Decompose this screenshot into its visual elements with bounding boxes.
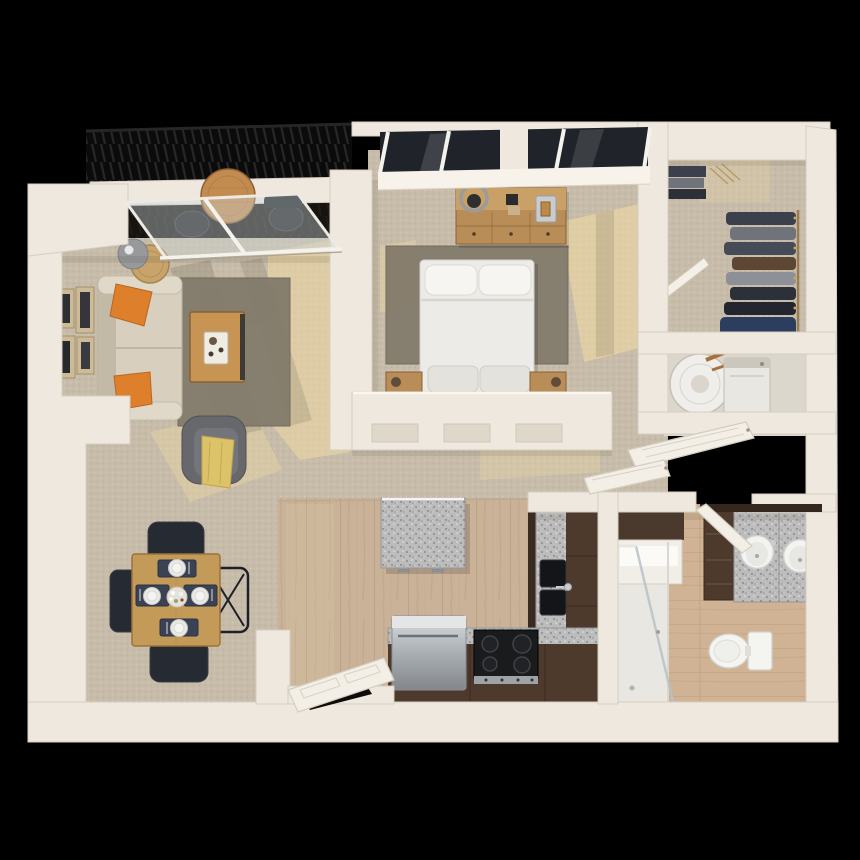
wall-floor-shadow	[352, 450, 612, 456]
nightstand-lamp	[551, 377, 561, 387]
nightstand-lamp	[391, 377, 401, 387]
place-setting-left	[136, 585, 169, 606]
drain	[798, 558, 802, 562]
toilet-tank	[748, 632, 772, 670]
island-handle	[398, 569, 410, 573]
island-handle	[432, 569, 444, 573]
shower-door-handle	[656, 630, 660, 634]
hanging-clothes	[720, 212, 797, 337]
pony-wall-inset	[444, 424, 490, 442]
pony-wall-inset	[516, 424, 562, 442]
ring-lamp-base	[467, 194, 481, 208]
kitchen-light-patch	[286, 504, 334, 700]
wall-pantry-stub	[256, 630, 290, 704]
floor-plan-rendering	[0, 0, 860, 860]
wall-bedroom-pony	[352, 392, 612, 450]
decor-box	[506, 194, 518, 205]
toilet-seat	[714, 640, 740, 662]
kitchen-island	[381, 498, 465, 568]
faucet	[770, 540, 776, 546]
folded-clothes	[664, 189, 706, 199]
bedroom-shadow-stripe	[596, 210, 614, 357]
coffee-table-frame	[240, 314, 245, 380]
folded-clothes	[664, 166, 706, 177]
wall-bottom-outer	[28, 702, 838, 742]
bedroom-windows	[378, 126, 650, 190]
burner	[483, 657, 497, 671]
bed-pillow	[479, 265, 531, 295]
teapot	[209, 337, 217, 345]
wall-closet-top	[644, 122, 830, 160]
wall-floor-shadow	[528, 514, 828, 520]
burner	[514, 657, 530, 673]
frame-art	[81, 342, 90, 369]
coffee-table-tray	[204, 332, 228, 364]
frame-art	[80, 292, 90, 328]
decor-box	[508, 206, 520, 215]
toilet-hinge	[745, 646, 751, 656]
wall-floor-shadow	[660, 160, 808, 166]
throw-blanket	[202, 436, 234, 488]
dresser	[456, 185, 569, 248]
toilet	[709, 632, 772, 670]
wall-top-living-left	[28, 184, 128, 256]
floor-lamp-bulb	[125, 246, 134, 255]
place-setting-right	[184, 585, 217, 606]
range-handle-strip	[474, 676, 538, 684]
bed-pillow	[425, 265, 477, 295]
centerpiece	[167, 587, 187, 607]
drain	[755, 554, 759, 558]
wall-floor-shadow	[372, 180, 378, 392]
sun-patch-closet	[700, 160, 770, 202]
range-cooktop	[474, 630, 538, 684]
decor-bottle	[541, 202, 550, 216]
wall-closet-bottom	[638, 332, 836, 354]
shower-drain	[630, 686, 635, 691]
wall-kitchen-bathroom	[598, 492, 618, 704]
foot-cushion	[428, 366, 478, 392]
coffee-table	[190, 312, 245, 382]
foot-cushion	[480, 366, 530, 392]
washer-knob	[760, 362, 764, 366]
cup	[219, 348, 224, 353]
washer	[724, 358, 770, 414]
burner	[513, 635, 531, 653]
hinge	[746, 428, 750, 432]
bed	[420, 260, 538, 400]
place-setting-bottom	[160, 619, 198, 637]
vanity-mirror-strip	[700, 504, 822, 512]
dishwasher	[392, 616, 466, 690]
dishwasher-top	[392, 616, 466, 628]
window-pillar	[500, 126, 528, 176]
burner	[482, 636, 498, 652]
linen-shelf-highlight	[620, 546, 678, 566]
floor-plan-canvas	[0, 0, 860, 860]
folded-clothes	[666, 178, 704, 188]
cup	[209, 352, 214, 357]
hinge	[664, 466, 668, 470]
armchair	[182, 416, 246, 488]
pony-wall-inset	[372, 424, 418, 442]
place-setting-top	[158, 560, 196, 578]
faucet	[565, 584, 572, 591]
